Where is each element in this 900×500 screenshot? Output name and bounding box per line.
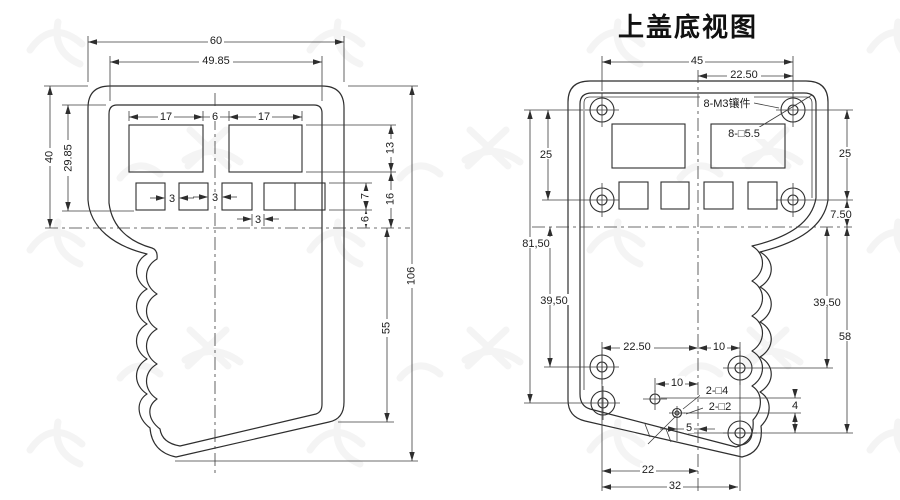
dim-bottom-22-50: 22.50	[623, 341, 651, 353]
dim-right-25: 25	[839, 148, 851, 160]
dim-handle-h: 55	[381, 322, 393, 334]
dim-bottom-10: 10	[713, 341, 725, 353]
dim-right-7-50: 7.50	[830, 209, 851, 221]
drawing-canvas: 60 49.85 17 6 17 3 3 3 40 29.85 13	[0, 0, 900, 500]
label-square-2: 2-□2	[709, 401, 732, 413]
technical-drawing-page: 60 49.85 17 6 17 3 3 3 40 29.85 13	[0, 0, 900, 500]
dim-bottom-32: 32	[669, 480, 681, 492]
dim-window-h: 13	[385, 142, 397, 154]
dim-win-to-mid: 16	[385, 193, 397, 205]
dim-total-height: 106	[406, 267, 418, 285]
dim-total-width: 60	[210, 35, 222, 47]
dim-hole-span: 45	[691, 55, 703, 67]
label-square-4: 2-□4	[706, 385, 729, 397]
dim-window-right-w: 17	[258, 111, 270, 123]
dim-bottom-22: 22	[642, 464, 654, 476]
dim-right-39-50: 39,50	[813, 297, 841, 309]
dim-left-39-50: 39,50	[540, 295, 568, 307]
dim-window-gap: 6	[212, 111, 218, 123]
view-title: 上盖底视图	[618, 12, 758, 42]
dim-inner-height: 29.85	[63, 144, 75, 172]
dim-middle-10: 10	[671, 377, 683, 389]
dim-window-left-w: 17	[160, 111, 172, 123]
dim-inner-width: 49.85	[202, 55, 230, 67]
label-inserts: 8-M3镶件	[703, 96, 750, 110]
dim-hole-half: 22.50	[730, 69, 758, 81]
dim-horiz-5: 5	[686, 422, 692, 434]
dim-btn-gap3: 3	[255, 214, 261, 226]
dim-upper-height: 40	[44, 151, 56, 163]
dim-btn-gap2: 3	[212, 192, 218, 204]
dim-btn-h: 7	[360, 193, 372, 199]
dim-vert-4: 4	[792, 400, 798, 412]
dim-left-81-50: 81,50	[522, 238, 550, 250]
dim-right-58: 58	[839, 331, 851, 343]
dim-left-25: 25	[540, 149, 552, 161]
dim-btn-below: 6	[360, 216, 372, 222]
dim-btn-gap1: 3	[169, 193, 175, 205]
label-square-5-5: 8-□5.5	[728, 128, 760, 140]
